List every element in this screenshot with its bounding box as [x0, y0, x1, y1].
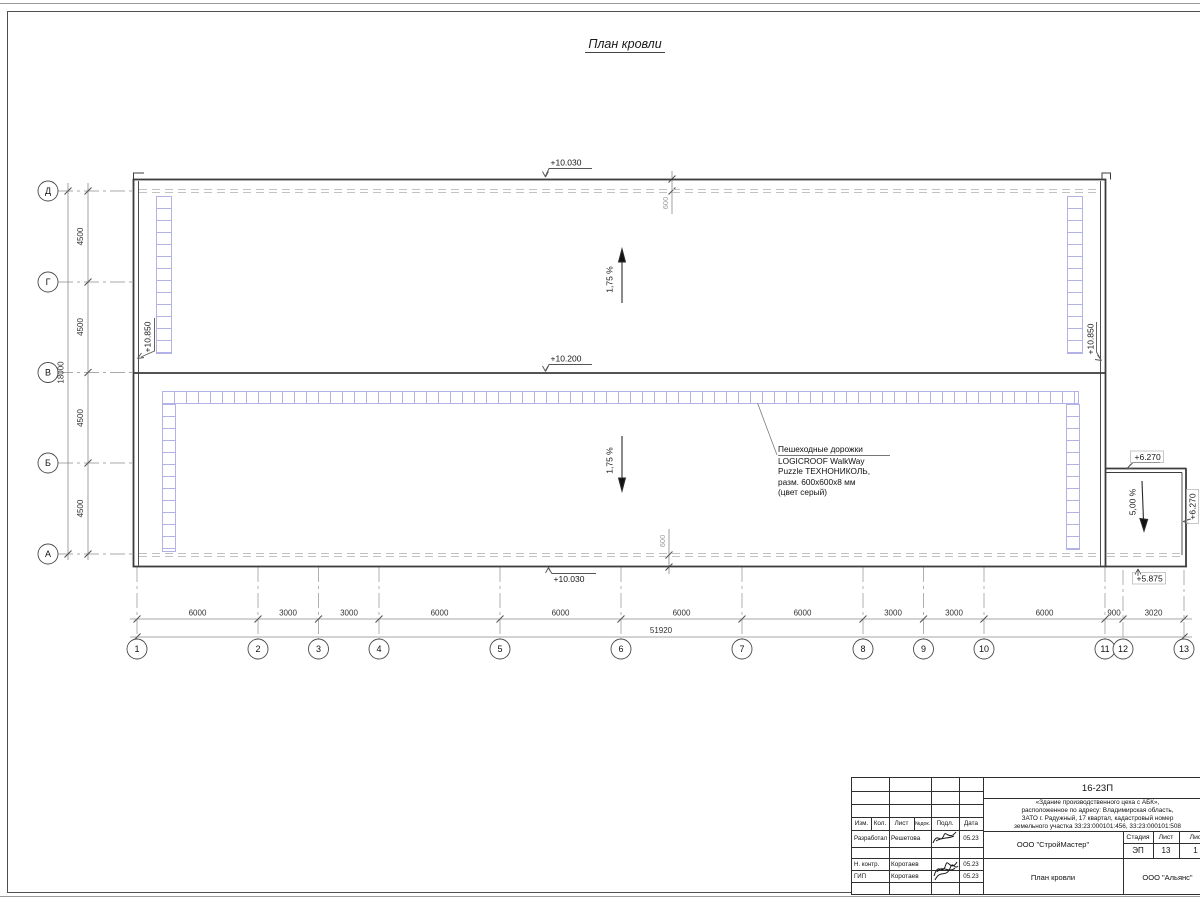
svg-text:6: 6 — [618, 644, 623, 654]
svg-text:4500: 4500 — [76, 227, 85, 245]
tb-desc-line: ЗАТО г. Радужный, 17 квартал, кадастровы… — [1022, 815, 1174, 823]
slope-arrowhead-annex — [1140, 519, 1148, 532]
svg-text:Б: Б — [45, 458, 51, 468]
bottom-dimension-labels: 6000 3000 3000 6000 6000 6000 6000 3000 … — [189, 609, 1163, 636]
plan-linework: 6000 3000 3000 6000 6000 6000 6000 3000 … — [0, 0, 1200, 900]
tb-doc-number: 16-23П — [983, 778, 1200, 798]
tb-org: ООО "Альянс" — [1123, 858, 1200, 896]
tb-header-kol: Кол. — [871, 817, 889, 830]
svg-text:13: 13 — [1179, 644, 1189, 654]
dimension-ticks — [65, 176, 1188, 641]
title-block: Изм. Кол. Лист №док. Подл. Дата Разработ… — [851, 777, 1200, 895]
svg-text:6000: 6000 — [673, 609, 691, 618]
svg-text:600: 600 — [658, 535, 667, 548]
svg-text:5,00 %: 5,00 % — [1128, 488, 1138, 515]
svg-text:+6.270: +6.270 — [1188, 493, 1198, 520]
svg-text:8: 8 — [860, 644, 865, 654]
svg-text:10: 10 — [979, 644, 989, 654]
svg-text:6000: 6000 — [1036, 609, 1054, 618]
note-leader-line — [758, 403, 778, 455]
elevation-labels: +10.030 +10.200 +10.030 +10.850 +10.850 … — [143, 158, 1198, 585]
tb-sheets-header: Лис — [1179, 831, 1200, 843]
note-line: Puzzle ТЕХНОНИКОЛЬ, — [778, 466, 890, 477]
tb-grid-line — [852, 804, 983, 805]
svg-text:+10.030: +10.030 — [554, 574, 585, 584]
svg-text:600: 600 — [661, 197, 670, 210]
svg-text:Г: Г — [46, 277, 51, 287]
tb-sheet-header: Лист — [1153, 831, 1179, 843]
svg-text:+10.200: +10.200 — [551, 354, 582, 364]
tb-role: ГИП — [854, 870, 889, 882]
tb-header-izm: Изм. — [852, 817, 871, 830]
note-line: (цвет серый) — [778, 487, 890, 498]
svg-text:11: 11 — [1100, 644, 1109, 654]
tb-name: Коротаев — [891, 870, 931, 882]
annex-outline — [1106, 469, 1188, 567]
tb-sheet-value: 13 — [1153, 843, 1179, 858]
svg-text:4500: 4500 — [76, 318, 85, 336]
slope-arrow-annex — [1142, 481, 1144, 521]
tb-stage-value: ЭП — [1123, 843, 1153, 858]
note-line: Пешеходные дорожки — [778, 444, 890, 456]
signature-korotaev — [930, 856, 960, 886]
svg-text:1,75 %: 1,75 % — [605, 266, 615, 293]
svg-text:2: 2 — [255, 644, 260, 654]
svg-text:3000: 3000 — [279, 609, 297, 618]
left-dimension-labels: 4500 4500 4500 4500 18000 600 600 — [57, 197, 671, 548]
svg-text:3000: 3000 — [884, 609, 902, 618]
tb-grid-line — [852, 847, 983, 848]
svg-text:Д: Д — [45, 186, 51, 196]
drawing-sheet: План кровли — [0, 0, 1200, 900]
tb-sheet-name: План кровли — [983, 858, 1123, 896]
row-axis-bubbles: Д Г В Б А — [38, 181, 58, 564]
tb-header-ndok: №док. — [914, 817, 931, 830]
svg-text:+5.875: +5.875 — [1137, 574, 1164, 584]
svg-text:5: 5 — [497, 644, 502, 654]
tb-name: Коротаев — [891, 858, 931, 870]
svg-text:51920: 51920 — [650, 626, 673, 635]
tb-date: 05.23 — [959, 830, 983, 847]
svg-text:12: 12 — [1118, 644, 1128, 654]
svg-text:900: 900 — [1107, 609, 1121, 618]
tb-grid-line — [852, 882, 983, 883]
tb-project-description: «Здание производственного цеха с АБК», р… — [983, 798, 1200, 831]
note-line: разм. 600х600х8 мм — [778, 477, 890, 488]
svg-text:7: 7 — [739, 644, 744, 654]
tb-date: 05.23 — [959, 870, 983, 882]
svg-text:+10.030: +10.030 — [551, 158, 582, 168]
note-line: LOGICROOF WalkWay — [778, 456, 890, 467]
svg-text:4: 4 — [376, 644, 381, 654]
svg-text:4500: 4500 — [76, 409, 85, 427]
signature-reshetova — [930, 828, 960, 850]
svg-text:3: 3 — [316, 644, 321, 654]
tb-sheets-value: 1 — [1179, 843, 1200, 858]
svg-text:9: 9 — [921, 644, 926, 654]
svg-text:А: А — [45, 549, 51, 559]
tb-desc-line: расположенное по адресу: Владимирская об… — [1021, 807, 1173, 815]
svg-text:3000: 3000 — [340, 609, 358, 618]
svg-text:В: В — [45, 368, 51, 378]
svg-text:3000: 3000 — [945, 609, 963, 618]
svg-text:1: 1 — [134, 644, 139, 654]
building-outline — [134, 173, 1188, 567]
tb-role: Н. контр. — [854, 858, 889, 870]
tb-role: Разработал — [854, 830, 889, 847]
tb-company: ООО "СтройМастер" — [983, 831, 1123, 858]
svg-text:6000: 6000 — [552, 609, 570, 618]
col-axis-bubbles: 1 2 3 4 5 6 7 8 9 10 11 12 13 — [127, 639, 1194, 659]
tb-desc-line: «Здание производственного цеха с АБК», — [1036, 799, 1160, 807]
corner-stubs — [134, 173, 1111, 180]
svg-text:6000: 6000 — [431, 609, 449, 618]
tb-header-list: Лист — [889, 817, 914, 830]
slope-arrowhead-upper — [619, 249, 626, 262]
svg-text:1,75 %: 1,75 % — [605, 447, 615, 474]
svg-text:+10.850: +10.850 — [1086, 323, 1096, 354]
slope-arrowhead-lower — [619, 478, 626, 491]
svg-text:4500: 4500 — [76, 499, 85, 517]
tb-date: 05.23 — [959, 858, 983, 870]
svg-text:+10.850: +10.850 — [143, 321, 153, 352]
svg-text:6000: 6000 — [189, 609, 207, 618]
svg-text:6000: 6000 — [794, 609, 812, 618]
walkway-note: Пешеходные дорожки LOGICROOF WalkWay Puz… — [778, 444, 890, 498]
tb-stage-header: Стадия — [1123, 831, 1153, 843]
svg-text:+6.270: +6.270 — [1135, 452, 1162, 462]
tb-desc-line: земельного участка 33:23:000101:456, 33:… — [1014, 823, 1181, 831]
svg-text:3020: 3020 — [1145, 609, 1163, 618]
tb-grid-line — [889, 778, 890, 894]
tb-header-data: Дата — [959, 817, 983, 830]
tb-name: Решетова — [891, 830, 931, 847]
tb-grid-line — [852, 791, 983, 792]
